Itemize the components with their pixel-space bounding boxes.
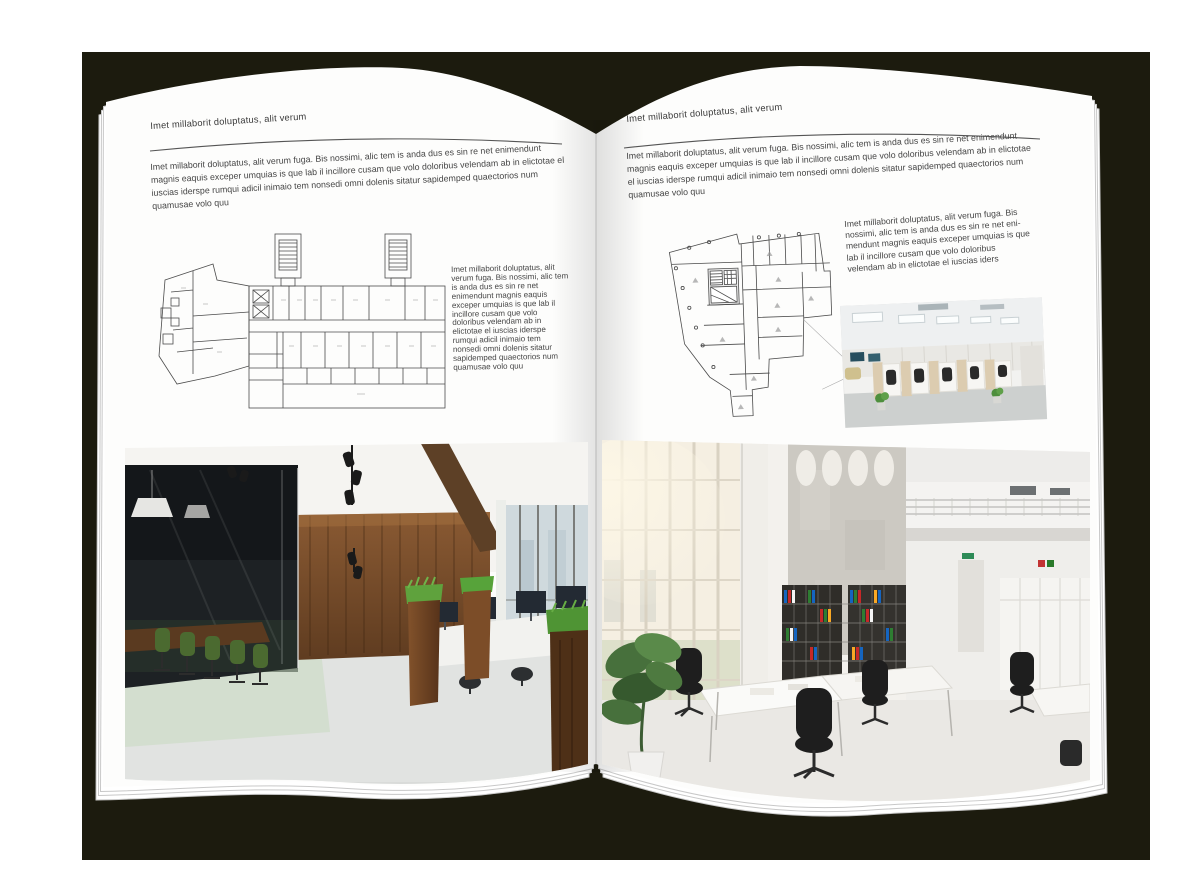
lounge-sofa xyxy=(845,367,862,380)
glass-meeting-room xyxy=(125,465,298,688)
small-office-photo xyxy=(840,297,1047,428)
left-page-side-text: Imet millaborit doluptatus, alit verum f… xyxy=(451,263,571,373)
mezzanine xyxy=(906,440,1090,541)
stair-core xyxy=(708,268,739,305)
small-photo-ceiling xyxy=(840,297,1044,350)
left-office-photo xyxy=(125,442,588,785)
right-office-photo xyxy=(555,435,1090,810)
pendant-lamp xyxy=(131,498,173,517)
magazine-mockup: Imet millaborit doluptatus, alit verum I… xyxy=(0,0,1200,891)
